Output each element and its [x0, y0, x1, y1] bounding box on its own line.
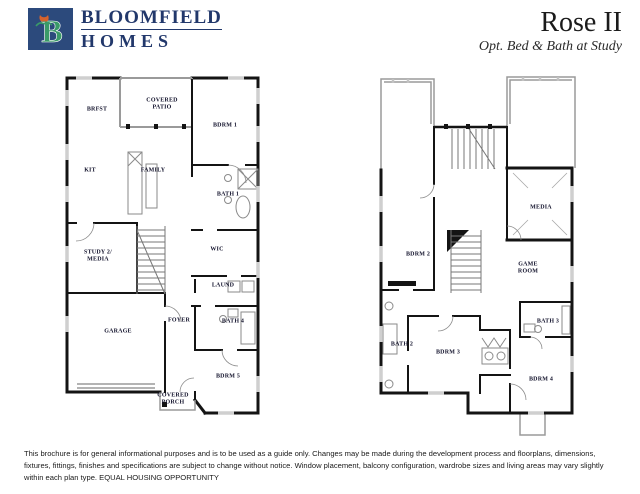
title-block: Rose II Opt. Bed & Bath at Study: [479, 8, 622, 55]
brand-wordmark: BLOOMFIELD HOMES: [81, 8, 222, 51]
disclaimer-text: This brochure is for general information…: [24, 448, 624, 483]
second-floor-plan-drawing: [368, 66, 578, 441]
brand-name-line2: HOMES: [81, 31, 222, 51]
plan-title: Rose II: [479, 8, 622, 38]
first-floor-plan-drawing: [32, 66, 267, 426]
first-floor-plan: BRFSTCOVERED PATIOBDRM 1KITFAMILYBATH 1W…: [32, 66, 267, 426]
plan-subtitle: Opt. Bed & Bath at Study: [479, 38, 622, 55]
second-floor-plan: MEDIABDRM 2GAME ROOMBATH 3BATH 2BDRM 3BD…: [368, 66, 578, 441]
brand-name-line1: BLOOMFIELD: [81, 8, 222, 30]
bloomfield-logo-icon: B: [28, 8, 73, 50]
bloomfield-logo: B BLOOMFIELD HOMES: [28, 8, 222, 51]
